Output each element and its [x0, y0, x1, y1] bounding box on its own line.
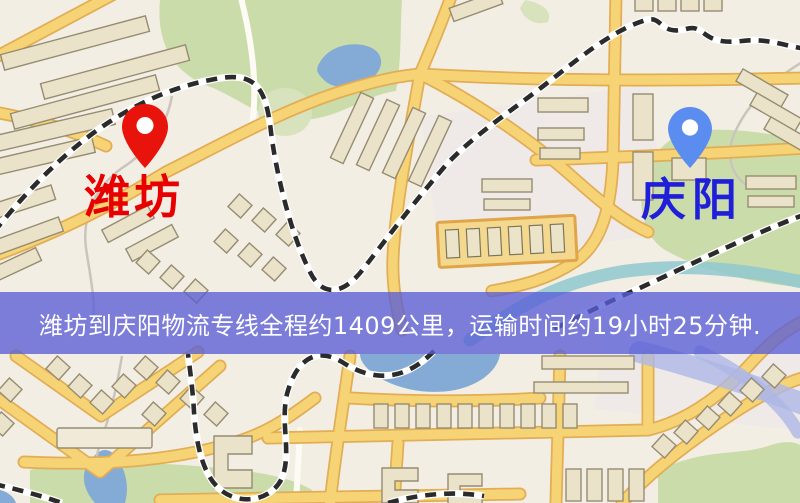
- origin-label: 潍坊: [84, 174, 184, 220]
- map-canvas: [0, 0, 800, 503]
- destination-label: 庆阳: [641, 177, 743, 222]
- route-info-text: 潍坊到庆阳物流专线全程约1409公里，运输时间约19小时25分钟.: [39, 306, 761, 341]
- map-screenshot: 潍坊 庆阳 潍坊到庆阳物流专线全程约1409公里，运输时间约19小时25分钟.: [0, 0, 800, 503]
- route-info-banner: 潍坊到庆阳物流专线全程约1409公里，运输时间约19小时25分钟.: [0, 292, 800, 354]
- destination-marker[interactable]: [666, 106, 714, 173]
- origin-marker[interactable]: [121, 103, 169, 173]
- map-pin-icon: [666, 106, 714, 169]
- highlighted-building-strip: [437, 215, 577, 267]
- map-pin-icon: [121, 103, 169, 169]
